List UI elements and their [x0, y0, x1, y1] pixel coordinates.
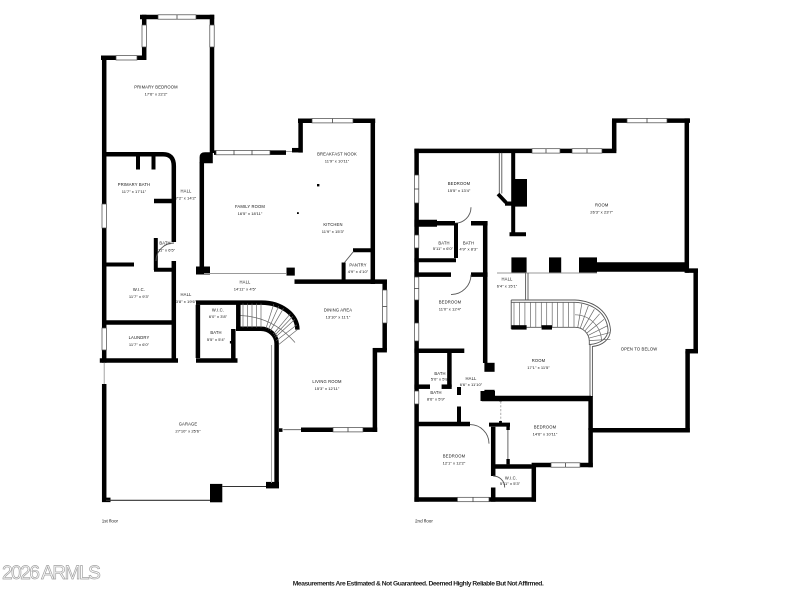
svg-text:11'0" x 12'4": 11'0" x 12'4" — [439, 307, 462, 312]
svg-text:DINING AREA: DINING AREA — [324, 308, 352, 313]
svg-text:8'6" x 5'9": 8'6" x 5'9" — [427, 397, 446, 402]
svg-text:5'5" x 5'4": 5'5" x 5'4" — [207, 337, 226, 342]
svg-text:BEDROOM: BEDROOM — [448, 181, 471, 186]
svg-text:HALL: HALL — [181, 292, 193, 297]
svg-text:15'5" x 13'4": 15'5" x 13'4" — [448, 188, 471, 193]
svg-text:BATH: BATH — [210, 330, 221, 335]
svg-text:ROOM: ROOM — [595, 203, 609, 208]
svg-text:6'4" x 15'1": 6'4" x 15'1" — [497, 284, 518, 289]
svg-text:BATH: BATH — [463, 241, 474, 246]
svg-text:14'6" x 10'11": 14'6" x 10'11" — [533, 432, 558, 437]
svg-text:2026 ARMLS: 2026 ARMLS — [2, 563, 102, 584]
svg-text:11'9" x 10'11": 11'9" x 10'11" — [325, 159, 350, 164]
svg-text:BATH: BATH — [438, 241, 449, 246]
svg-text:HALL: HALL — [502, 277, 514, 282]
svg-text:1st floor: 1st floor — [102, 519, 119, 524]
svg-text:16'5" x 18'11": 16'5" x 18'11" — [238, 211, 263, 216]
svg-text:12'1" x 12'2": 12'1" x 12'2" — [443, 461, 466, 466]
svg-text:HALL: HALL — [181, 189, 193, 194]
svg-text:11'7" x 6'0": 11'7" x 6'0" — [129, 342, 150, 347]
svg-text:2'11" x 6'5": 2'11" x 6'5" — [155, 248, 176, 253]
svg-text:OPEN TO BELOW: OPEN TO BELOW — [621, 347, 658, 352]
svg-text:BATH: BATH — [434, 371, 445, 376]
svg-text:6'0" x 3'8": 6'0" x 3'8" — [209, 314, 228, 319]
svg-text:4'9" x 8'3": 4'9" x 8'3" — [459, 247, 478, 252]
svg-text:BATH: BATH — [430, 390, 441, 395]
svg-text:LAUNDRY: LAUNDRY — [129, 335, 150, 340]
svg-text:HALL: HALL — [240, 280, 252, 285]
svg-text:W.I.C.: W.I.C. — [212, 308, 224, 313]
svg-text:14'11" x 4'5": 14'11" x 4'5" — [234, 287, 257, 292]
svg-text:BEDROOM: BEDROOM — [534, 425, 557, 430]
svg-text:11'9" x 15'3": 11'9" x 15'3" — [322, 229, 345, 234]
svg-text:PANTRY: PANTRY — [349, 263, 366, 268]
svg-text:11'7" x 9'3": 11'7" x 9'3" — [129, 294, 150, 299]
svg-text:GARAGE: GARAGE — [179, 422, 198, 427]
svg-text:5'11" x 6'0": 5'11" x 6'0" — [433, 246, 454, 251]
svg-text:3'8" x 19'6": 3'8" x 19'6" — [176, 299, 197, 304]
svg-text:5'11" x 5'3": 5'11" x 5'3" — [500, 481, 521, 486]
svg-text:BATH: BATH — [159, 241, 170, 246]
svg-text:ROOM: ROOM — [532, 358, 546, 363]
svg-text:KITCHEN: KITCHEN — [323, 222, 342, 227]
svg-text:17'1" x 11'5": 17'1" x 11'5" — [527, 365, 550, 370]
svg-text:FAMILY ROOM: FAMILY ROOM — [235, 204, 265, 209]
svg-text:BEDROOM: BEDROOM — [443, 454, 466, 459]
svg-text:BEDROOM: BEDROOM — [439, 300, 462, 305]
svg-text:13'10" x 11'1": 13'10" x 11'1" — [326, 315, 351, 320]
svg-text:4'9" x 4'10": 4'9" x 4'10" — [348, 269, 369, 274]
svg-text:2nd floor: 2nd floor — [415, 519, 433, 524]
svg-text:PRIMARY BATH: PRIMARY BATH — [118, 182, 150, 187]
svg-text:BREAKFAST NOOK: BREAKFAST NOOK — [317, 152, 357, 157]
svg-text:7'2" x 14'2": 7'2" x 14'2" — [176, 196, 197, 201]
svg-text:Measurements Are Estimated & N: Measurements Are Estimated & Not Guarant… — [293, 581, 544, 588]
svg-text:W.I.C.: W.I.C. — [133, 287, 145, 292]
svg-text:6'6" x 11'10": 6'6" x 11'10" — [460, 382, 483, 387]
svg-text:15'3" x 12'11": 15'3" x 12'11" — [315, 386, 340, 391]
svg-text:LIVING ROOM: LIVING ROOM — [312, 379, 342, 384]
svg-text:HALL: HALL — [466, 376, 478, 381]
svg-text:W.I.C.: W.I.C. — [505, 476, 517, 481]
svg-text:26'3" x 23'7": 26'3" x 23'7" — [590, 210, 613, 215]
svg-text:PRIMARY BEDROOM: PRIMARY BEDROOM — [134, 85, 178, 90]
svg-text:27'10" x 25'6": 27'10" x 25'6" — [175, 429, 201, 434]
svg-text:5'0" x 5'8": 5'0" x 5'8" — [431, 377, 450, 382]
svg-text:11'7" x 17'11": 11'7" x 17'11" — [122, 189, 147, 194]
svg-text:17'6" x 22'2": 17'6" x 22'2" — [145, 92, 168, 97]
